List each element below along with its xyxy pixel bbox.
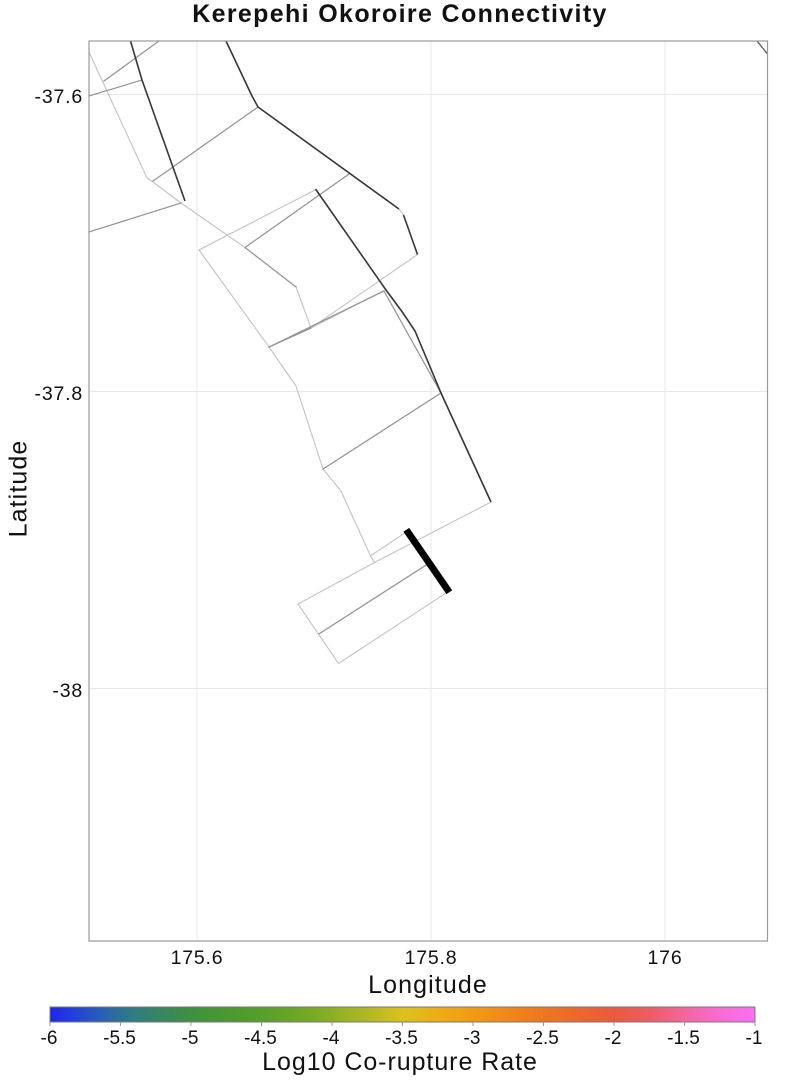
svg-text:-38: -38: [52, 680, 83, 702]
svg-text:-5.5: -5.5: [103, 1028, 136, 1049]
svg-text:-1.5: -1.5: [667, 1028, 700, 1049]
svg-text:-37.6: -37.6: [35, 86, 83, 108]
svg-text:175.8: 175.8: [405, 947, 458, 969]
svg-text:176: 176: [648, 947, 683, 969]
svg-text:-1: -1: [746, 1028, 763, 1049]
svg-text:-5: -5: [182, 1028, 199, 1049]
svg-text:-6: -6: [41, 1028, 58, 1049]
svg-text:-3: -3: [464, 1028, 481, 1049]
svg-text:-2: -2: [605, 1028, 622, 1049]
svg-text:Log10 Co-rupture Rate: Log10 Co-rupture Rate: [262, 1048, 538, 1076]
svg-text:Longitude: Longitude: [368, 971, 488, 999]
svg-text:-3.5: -3.5: [385, 1028, 418, 1049]
svg-text:-2.5: -2.5: [526, 1028, 559, 1049]
svg-text:Latitude: Latitude: [5, 440, 33, 538]
svg-text:-4: -4: [323, 1028, 340, 1049]
svg-text:-4.5: -4.5: [244, 1028, 277, 1049]
svg-text:175.6: 175.6: [171, 947, 224, 969]
svg-text:Kerepehi Okoroire Connectivity: Kerepehi Okoroire Connectivity: [192, 0, 608, 28]
svg-text:-37.8: -37.8: [35, 383, 83, 405]
